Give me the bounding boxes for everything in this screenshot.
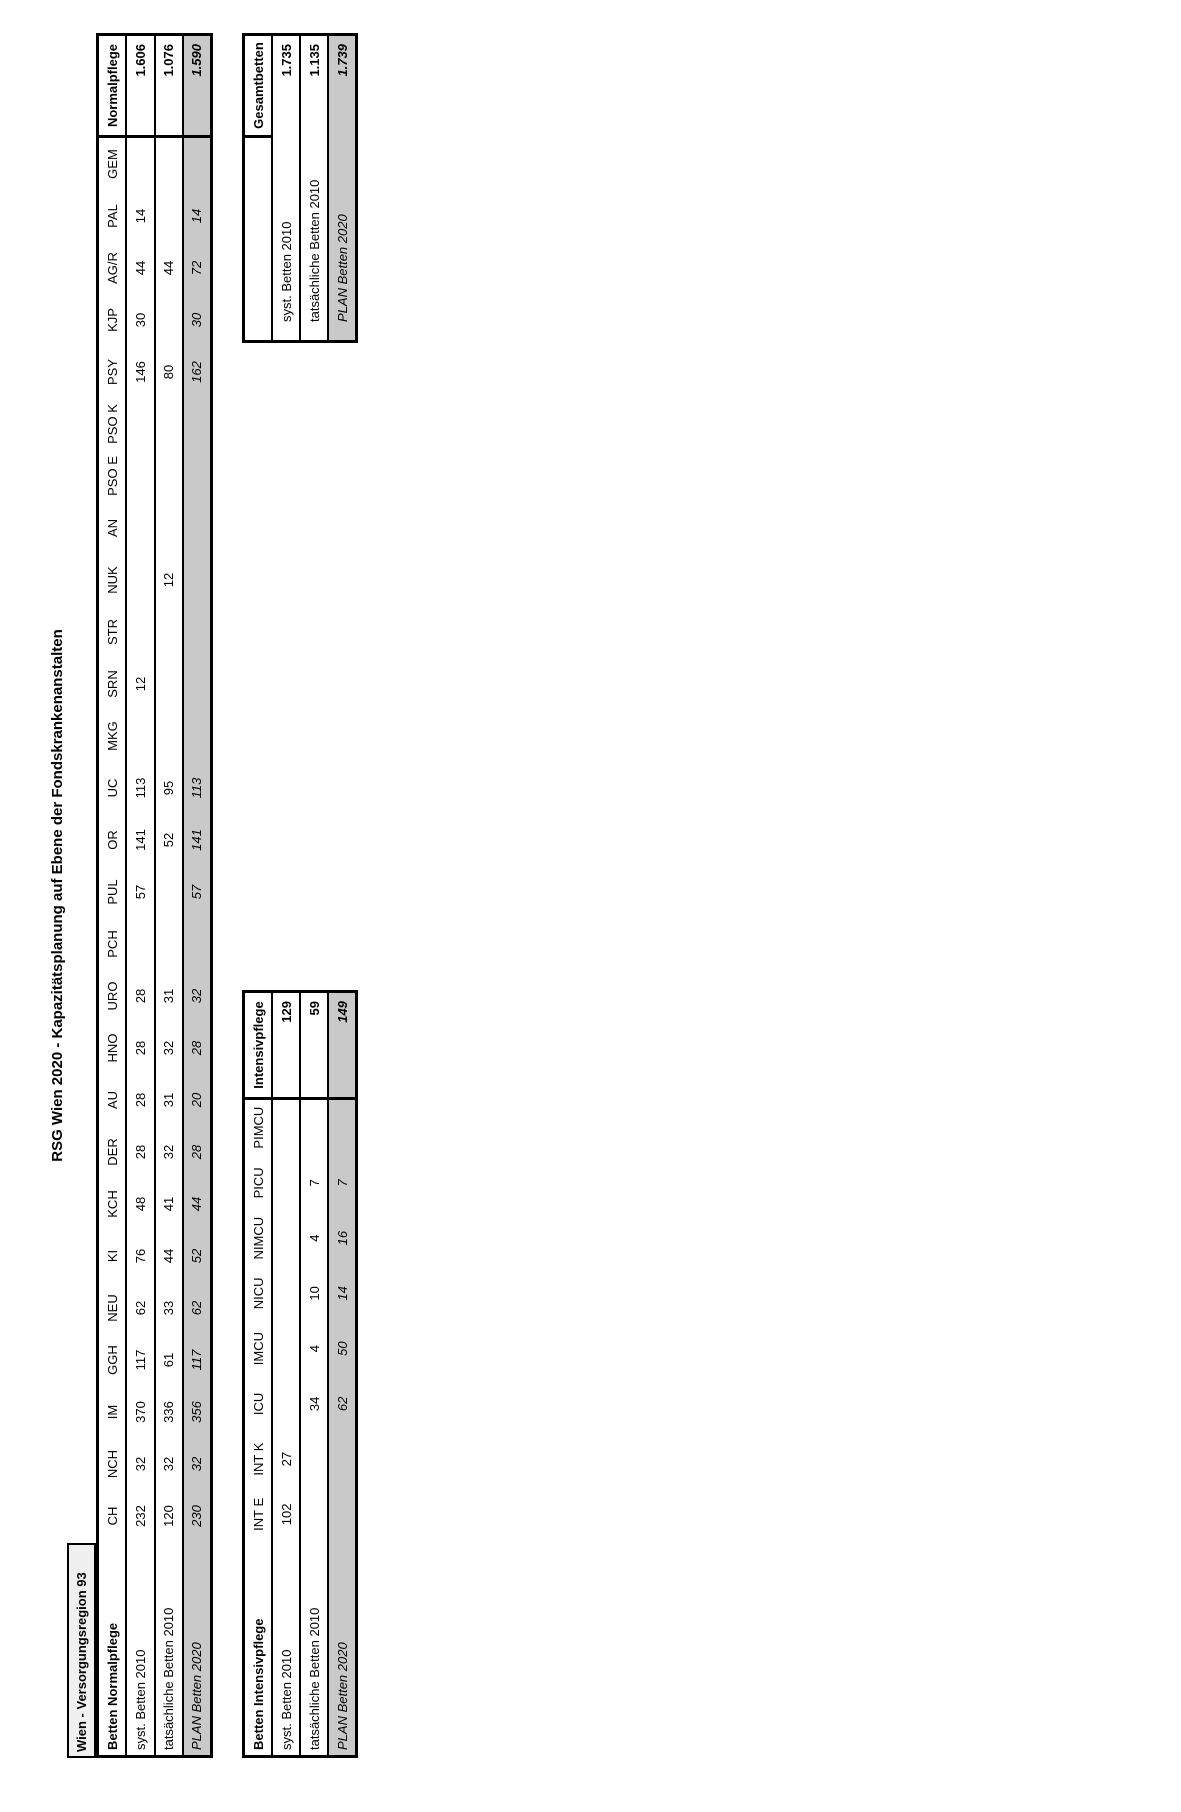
t-intensive-value-2-ICU: 62 — [329, 1376, 355, 1431]
t-normal-value-2-STR — [184, 606, 210, 658]
document-page: RSG Wien 2020 - Kapazitätsplanung auf Eb… — [0, 0, 1181, 1812]
t-normal-value-0-NCH: 32 — [127, 1438, 153, 1490]
t-normal-value-1-CH: 120 — [156, 1490, 182, 1542]
t-intensive-value-1-INT-K — [301, 1432, 327, 1487]
t-intensive-col-header-IMCU: IMCU — [245, 1321, 271, 1376]
t-normal-total-header: Normalpflege — [99, 36, 125, 138]
t-normal-value-0-PSY: 146 — [127, 346, 153, 398]
t-intensive-row-total-0: 129 — [273, 993, 299, 1100]
t-normal-value-1-OR: 52 — [156, 814, 182, 866]
t-total-row-total-2: 1.739 — [329, 36, 355, 138]
t-intensive-row-2: PLAN Betten 2020625014167149 — [327, 993, 355, 1755]
t-normal-value-0-NUK — [127, 554, 153, 606]
total-beds-table: Gesamtbettensyst. Betten 20101.735tatsäc… — [242, 33, 358, 343]
t-normal-col-header-PSO-K: PSO K — [99, 398, 125, 450]
t-intensive-value-1-IMCU: 4 — [301, 1321, 327, 1376]
t-intensive-col-header-PIMCU: PIMCU — [245, 1100, 271, 1155]
t-intensive-value-2-INT-K — [329, 1432, 355, 1487]
t-total-corner-label — [245, 138, 271, 340]
t-normal-row-2: PLAN Betten 2020230323561176252442820283… — [182, 36, 210, 1755]
t-normal-value-0-PCH — [127, 918, 153, 970]
t-normal-value-0-CH: 232 — [127, 1490, 153, 1542]
t-normal-col-header-STR: STR — [99, 606, 125, 658]
t-normal-value-0-IM: 370 — [127, 1386, 153, 1438]
t-normal-col-header-UC: UC — [99, 762, 125, 814]
t-intensive-row-label-2: PLAN Betten 2020 — [329, 1542, 355, 1755]
t-normal-row-total-0: 1.606 — [127, 36, 153, 138]
t-intensive-col-header-INT-E: INT E — [245, 1487, 271, 1542]
t-normal-col-header-SRN: SRN — [99, 658, 125, 710]
t-normal-value-0-UC: 113 — [127, 762, 153, 814]
t-total-row-0: syst. Betten 20101.735 — [271, 36, 299, 340]
t-normal-col-header-KCH: KCH — [99, 1178, 125, 1230]
t-normal-value-2-GEM — [184, 138, 210, 190]
t-normal-value-1-KCH: 41 — [156, 1178, 182, 1230]
t-normal-value-2-PSO-E — [184, 450, 210, 502]
t-intensive-header-row: Betten IntensivpflegeINT EINT KICUIMCUNI… — [245, 993, 271, 1755]
t-intensive-row-label-0: syst. Betten 2010 — [273, 1542, 299, 1755]
t-intensive-corner-label: Betten Intensivpflege — [245, 1542, 271, 1755]
t-intensive-row-1: tatsächliche Betten 2010344104759 — [299, 993, 327, 1755]
t-intensive-row-total-2: 149 — [329, 993, 355, 1100]
t-normal-col-header-NEU: NEU — [99, 1282, 125, 1334]
t-intensive-value-1-NICU: 10 — [301, 1266, 327, 1321]
t-intensive-value-1-PIMCU — [301, 1100, 327, 1155]
t-total-row-total-1: 1.135 — [301, 36, 327, 138]
t-normal-value-1-MKG — [156, 710, 182, 762]
t-normal-value-0-PSO-K — [127, 398, 153, 450]
t-total-row-1: tatsächliche Betten 20101.135 — [299, 36, 327, 340]
t-intensive-row-0: syst. Betten 201010227129 — [271, 993, 299, 1755]
t-intensive-value-0-PICU — [273, 1155, 299, 1210]
t-normal-value-1-PAL — [156, 190, 182, 242]
t-normal-value-0-AN — [127, 502, 153, 554]
t-intensive-value-0-INT-K: 27 — [273, 1432, 299, 1487]
t-normal-col-header-GEM: GEM — [99, 138, 125, 190]
t-intensive-value-0-NIMCU — [273, 1211, 299, 1266]
t-normal-value-2-IM: 356 — [184, 1386, 210, 1438]
rotated-landscape-sheet: RSG Wien 2020 - Kapazitätsplanung auf Eb… — [0, 0, 1181, 1812]
t-normal-col-header-AG-R: AG/R — [99, 242, 125, 294]
t-normal-col-header-GGH: GGH — [99, 1334, 125, 1386]
t-normal-col-header-CH: CH — [99, 1490, 125, 1542]
t-intensive-value-1-NIMCU: 4 — [301, 1211, 327, 1266]
t-normal-value-1-GGH: 61 — [156, 1334, 182, 1386]
t-normal-value-1-HNO: 32 — [156, 1022, 182, 1074]
region-header-box: Wien - Versorgungsregion 93 — [67, 1543, 96, 1758]
t-normal-value-1-KJP — [156, 294, 182, 346]
t-intensive-value-0-INT-E: 102 — [273, 1487, 299, 1542]
t-normal-value-0-AG-R: 44 — [127, 242, 153, 294]
t-intensive-value-2-IMCU: 50 — [329, 1321, 355, 1376]
t-normal-value-0-MKG — [127, 710, 153, 762]
t-normal-col-header-AU: AU — [99, 1074, 125, 1126]
t-normal-value-1-NUK: 12 — [156, 554, 182, 606]
t-normal-value-1-PSO-E — [156, 450, 182, 502]
t-intensive-value-1-ICU: 34 — [301, 1376, 327, 1431]
t-normal-value-2-AG-R: 72 — [184, 242, 210, 294]
t-normal-col-header-DER: DER — [99, 1126, 125, 1178]
t-intensive-col-header-ICU: ICU — [245, 1376, 271, 1431]
t-normal-value-0-URO: 28 — [127, 970, 153, 1022]
t-normal-value-1-PUL — [156, 866, 182, 918]
t-normal-value-2-CH: 230 — [184, 1490, 210, 1542]
t-normal-value-2-DER: 28 — [184, 1126, 210, 1178]
t-intensive-value-2-INT-E — [329, 1487, 355, 1542]
t-normal-col-header-OR: OR — [99, 814, 125, 866]
t-intensive-value-0-PIMCU — [273, 1100, 299, 1155]
t-total-header-row: Gesamtbetten — [245, 36, 271, 340]
t-total-row-label-0: syst. Betten 2010 — [273, 138, 299, 340]
t-normal-col-header-PAL: PAL — [99, 190, 125, 242]
t-normal-value-2-NUK — [184, 554, 210, 606]
region-header-label: Wien - Versorgungsregion 93 — [74, 1572, 89, 1752]
t-normal-col-header-HNO: HNO — [99, 1022, 125, 1074]
t-normal-value-0-OR: 141 — [127, 814, 153, 866]
t-normal-value-1-NCH: 32 — [156, 1438, 182, 1490]
t-normal-value-1-SRN — [156, 658, 182, 710]
normal-care-beds-table: Betten NormalpflegeCHNCHIMGGHNEUKIKCHDER… — [96, 33, 213, 1758]
t-intensive-value-2-NICU: 14 — [329, 1266, 355, 1321]
t-normal-value-2-SRN — [184, 658, 210, 710]
t-normal-corner-label: Betten Normalpflege — [99, 1542, 125, 1755]
t-intensive-row-label-1: tatsächliche Betten 2010 — [301, 1542, 327, 1755]
t-normal-col-header-MKG: MKG — [99, 710, 125, 762]
t-normal-value-0-STR — [127, 606, 153, 658]
t-normal-col-header-KJP: KJP — [99, 294, 125, 346]
t-normal-value-2-MKG — [184, 710, 210, 762]
t-normal-value-2-PUL: 57 — [184, 866, 210, 918]
t-normal-value-0-NEU: 62 — [127, 1282, 153, 1334]
t-intensive-value-2-PICU: 7 — [329, 1155, 355, 1210]
t-normal-value-1-AG-R: 44 — [156, 242, 182, 294]
t-normal-col-header-URO: URO — [99, 970, 125, 1022]
t-normal-value-2-NCH: 32 — [184, 1438, 210, 1490]
t-normal-value-0-KCH: 48 — [127, 1178, 153, 1230]
t-normal-value-1-AN — [156, 502, 182, 554]
intensive-care-beds-table: Betten IntensivpflegeINT EINT KICUIMCUNI… — [242, 990, 358, 1758]
t-intensive-value-0-ICU — [273, 1376, 299, 1431]
t-normal-row-1: tatsächliche Betten 20101203233661334441… — [154, 36, 182, 1755]
t-normal-value-0-PAL: 14 — [127, 190, 153, 242]
t-normal-value-0-GEM — [127, 138, 153, 190]
t-intensive-col-header-NICU: NICU — [245, 1266, 271, 1321]
t-normal-value-2-OR: 141 — [184, 814, 210, 866]
t-normal-value-0-GGH: 117 — [127, 1334, 153, 1386]
t-intensive-row-total-1: 59 — [301, 993, 327, 1100]
t-intensive-value-2-PIMCU — [329, 1100, 355, 1155]
t-normal-col-header-PCH: PCH — [99, 918, 125, 970]
t-normal-col-header-NCH: NCH — [99, 1438, 125, 1490]
t-normal-value-1-DER: 32 — [156, 1126, 182, 1178]
t-normal-row-total-2: 1.590 — [184, 36, 210, 138]
t-normal-row-total-1: 1.076 — [156, 36, 182, 138]
t-normal-value-2-KCH: 44 — [184, 1178, 210, 1230]
t-intensive-value-2-NIMCU: 16 — [329, 1211, 355, 1266]
t-normal-value-0-PUL: 57 — [127, 866, 153, 918]
t-normal-value-1-AU: 31 — [156, 1074, 182, 1126]
t-normal-value-1-KI: 44 — [156, 1230, 182, 1282]
t-normal-value-1-PCH — [156, 918, 182, 970]
t-normal-value-2-URO: 32 — [184, 970, 210, 1022]
t-intensive-total-header: Intensivpflege — [245, 993, 271, 1100]
t-intensive-col-header-INT-K: INT K — [245, 1432, 271, 1487]
t-normal-col-header-PUL: PUL — [99, 866, 125, 918]
t-normal-value-0-AU: 28 — [127, 1074, 153, 1126]
t-total-row-label-2: PLAN Betten 2020 — [329, 138, 355, 340]
t-normal-value-2-AN — [184, 502, 210, 554]
t-normal-row-label-0: syst. Betten 2010 — [127, 1542, 153, 1755]
t-normal-value-0-PSO-E — [127, 450, 153, 502]
t-normal-value-0-DER: 28 — [127, 1126, 153, 1178]
t-normal-value-2-KI: 52 — [184, 1230, 210, 1282]
t-total-row-2: PLAN Betten 20201.739 — [327, 36, 355, 340]
t-normal-header-row: Betten NormalpflegeCHNCHIMGGHNEUKIKCHDER… — [99, 36, 125, 1755]
t-normal-value-2-KJP: 30 — [184, 294, 210, 346]
t-normal-value-2-PCH — [184, 918, 210, 970]
t-normal-value-1-GEM — [156, 138, 182, 190]
t-intensive-value-1-INT-E — [301, 1487, 327, 1542]
t-normal-value-1-PSY: 80 — [156, 346, 182, 398]
t-normal-value-0-SRN: 12 — [127, 658, 153, 710]
t-normal-col-header-IM: IM — [99, 1386, 125, 1438]
t-normal-value-0-KJP: 30 — [127, 294, 153, 346]
t-total-total-header: Gesamtbetten — [245, 36, 271, 138]
t-normal-col-header-AN: AN — [99, 502, 125, 554]
t-total-row-label-1: tatsächliche Betten 2010 — [301, 138, 327, 340]
t-total-row-total-0: 1.735 — [273, 36, 299, 138]
t-normal-value-1-UC: 95 — [156, 762, 182, 814]
t-normal-value-1-IM: 336 — [156, 1386, 182, 1438]
t-normal-value-0-HNO: 28 — [127, 1022, 153, 1074]
t-normal-row-0: syst. Betten 201023232370117627648282828… — [125, 36, 153, 1755]
t-normal-value-2-NEU: 62 — [184, 1282, 210, 1334]
t-normal-col-header-KI: KI — [99, 1230, 125, 1282]
t-normal-value-1-NEU: 33 — [156, 1282, 182, 1334]
t-normal-value-2-GGH: 117 — [184, 1334, 210, 1386]
t-normal-col-header-PSO-E: PSO E — [99, 450, 125, 502]
t-normal-value-2-PAL: 14 — [184, 190, 210, 242]
t-intensive-value-1-PICU: 7 — [301, 1155, 327, 1210]
t-normal-value-2-AU: 20 — [184, 1074, 210, 1126]
t-normal-value-2-PSY: 162 — [184, 346, 210, 398]
t-normal-col-header-PSY: PSY — [99, 346, 125, 398]
t-normal-value-0-KI: 76 — [127, 1230, 153, 1282]
t-normal-value-1-URO: 31 — [156, 970, 182, 1022]
page-title: RSG Wien 2020 - Kapazitätsplanung auf Eb… — [49, 33, 66, 1758]
t-normal-row-label-2: PLAN Betten 2020 — [184, 1542, 210, 1755]
t-normal-value-1-PSO-K — [156, 398, 182, 450]
t-normal-value-2-HNO: 28 — [184, 1022, 210, 1074]
t-intensive-col-header-PICU: PICU — [245, 1155, 271, 1210]
t-intensive-col-header-NIMCU: NIMCU — [245, 1211, 271, 1266]
t-normal-col-header-NUK: NUK — [99, 554, 125, 606]
t-normal-row-label-1: tatsächliche Betten 2010 — [156, 1542, 182, 1755]
t-normal-value-1-STR — [156, 606, 182, 658]
t-normal-value-2-UC: 113 — [184, 762, 210, 814]
t-normal-value-2-PSO-K — [184, 398, 210, 450]
t-intensive-value-0-IMCU — [273, 1321, 299, 1376]
t-intensive-value-0-NICU — [273, 1266, 299, 1321]
